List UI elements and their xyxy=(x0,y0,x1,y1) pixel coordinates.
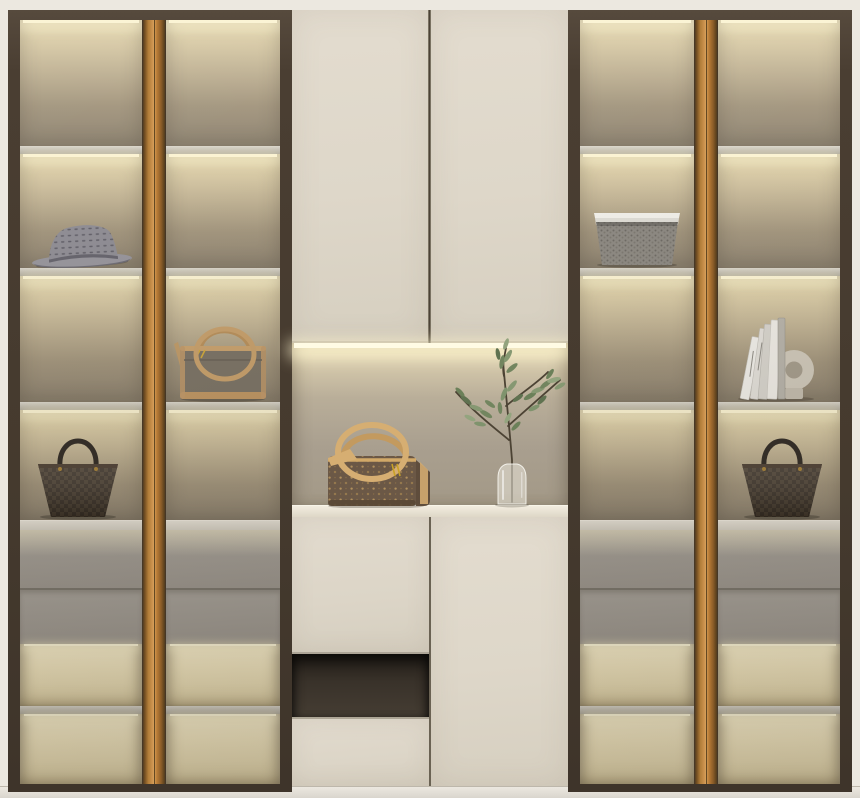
shelf xyxy=(166,146,280,154)
compartment xyxy=(166,154,280,268)
glass-column-2 xyxy=(166,20,280,784)
shelf xyxy=(718,402,840,410)
compartment xyxy=(166,20,280,146)
shelf xyxy=(20,706,142,714)
monogram-handbag xyxy=(316,420,440,508)
compartment xyxy=(166,410,280,520)
books-and-ring xyxy=(730,298,822,402)
drawer-front xyxy=(166,588,280,646)
shelf xyxy=(718,268,840,276)
drawer-front xyxy=(718,530,840,588)
brass-trim-strip xyxy=(142,20,166,784)
shelf xyxy=(166,268,280,276)
shelf xyxy=(580,146,694,154)
center-cabinet-section xyxy=(292,10,568,786)
fedora-hat xyxy=(26,220,136,268)
left-display-section xyxy=(8,10,292,792)
drawer-front xyxy=(580,530,694,588)
compartment xyxy=(718,20,840,146)
shelf xyxy=(580,402,694,410)
lower-door-right xyxy=(431,517,568,786)
glass-column-1 xyxy=(20,20,142,784)
tote-bag xyxy=(28,424,128,520)
wardrobe-cabinet xyxy=(0,0,860,798)
lit-open-tray xyxy=(580,644,694,706)
shelf xyxy=(580,706,694,714)
upper-door-left xyxy=(292,10,428,343)
lit-open-tray xyxy=(580,714,694,784)
lit-open-tray xyxy=(718,714,840,784)
shelf xyxy=(718,146,840,154)
shelf xyxy=(20,268,142,276)
shelf xyxy=(20,146,142,154)
drawer-front xyxy=(166,530,280,588)
glass-column-4 xyxy=(718,20,840,784)
glass-column-3 xyxy=(580,20,694,784)
lit-open-tray xyxy=(20,644,142,706)
center-drawer xyxy=(292,717,429,786)
compartment xyxy=(580,20,694,146)
olive-branch-vase xyxy=(446,334,580,508)
drawer-front xyxy=(20,588,142,646)
compartment xyxy=(580,410,694,520)
lit-open-tray xyxy=(718,644,840,706)
right-display-section xyxy=(568,10,852,792)
door-gap xyxy=(428,10,431,343)
shelf xyxy=(718,706,840,714)
lit-open-tray xyxy=(166,644,280,706)
drawer-front xyxy=(580,588,694,646)
shelf xyxy=(20,402,142,410)
shelf xyxy=(166,706,280,714)
upper-door-right xyxy=(431,10,568,343)
open-compartment xyxy=(292,654,429,717)
compartment xyxy=(20,20,142,146)
leaves xyxy=(454,338,566,432)
drawer-front xyxy=(20,530,142,588)
compartment xyxy=(718,154,840,268)
duffel-bag xyxy=(170,318,274,402)
compartment xyxy=(580,276,694,402)
compartment xyxy=(20,276,142,402)
woven-basket xyxy=(588,204,686,268)
shelf xyxy=(580,268,694,276)
center-drawer xyxy=(292,517,429,654)
lit-open-tray xyxy=(166,714,280,784)
drawer-front xyxy=(718,588,840,646)
shelf xyxy=(166,402,280,410)
lit-open-tray xyxy=(20,714,142,784)
door-gap xyxy=(429,517,431,786)
tote-bag xyxy=(732,424,832,520)
brass-trim-strip xyxy=(694,20,718,784)
